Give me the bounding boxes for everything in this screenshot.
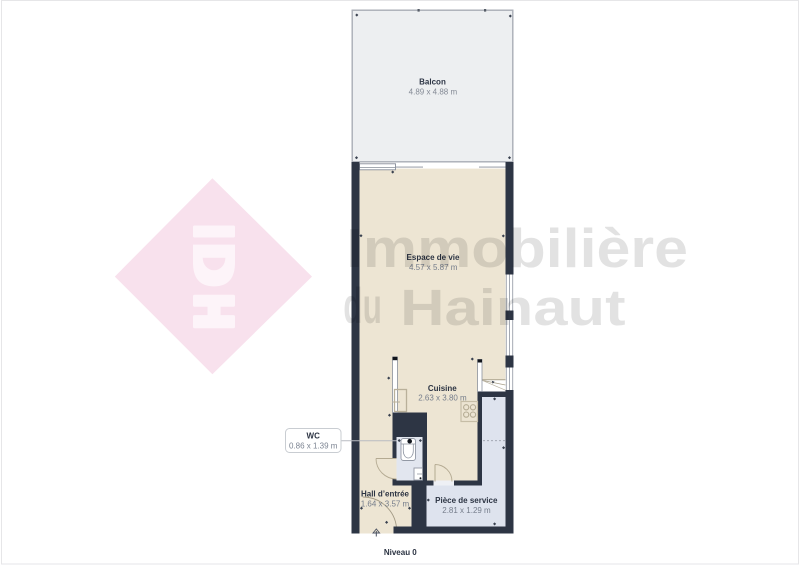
svg-text:Pièce de service: Pièce de service <box>435 496 498 505</box>
svg-text:WC: WC <box>307 432 321 441</box>
svg-text:2.63 x 3.80 m: 2.63 x 3.80 m <box>418 394 467 403</box>
svg-text:Hainaut: Hainaut <box>400 279 626 336</box>
svg-text:Balcon: Balcon <box>419 77 446 86</box>
svg-text:Immobilière: Immobilière <box>346 218 688 279</box>
svg-text:4.89 x 4.88 m: 4.89 x 4.88 m <box>409 88 458 97</box>
svg-text:2.81 x 1.29 m: 2.81 x 1.29 m <box>442 506 491 515</box>
svg-text:1.64 x 3.57 m: 1.64 x 3.57 m <box>361 499 410 508</box>
svg-text:0.86 x 1.39 m: 0.86 x 1.39 m <box>289 442 338 451</box>
svg-text:Cuisine: Cuisine <box>428 384 457 393</box>
svg-text:Niveau 0: Niveau 0 <box>384 548 417 557</box>
svg-text:du: du <box>343 278 382 334</box>
svg-text:Hall d’entrée: Hall d’entrée <box>361 489 410 498</box>
